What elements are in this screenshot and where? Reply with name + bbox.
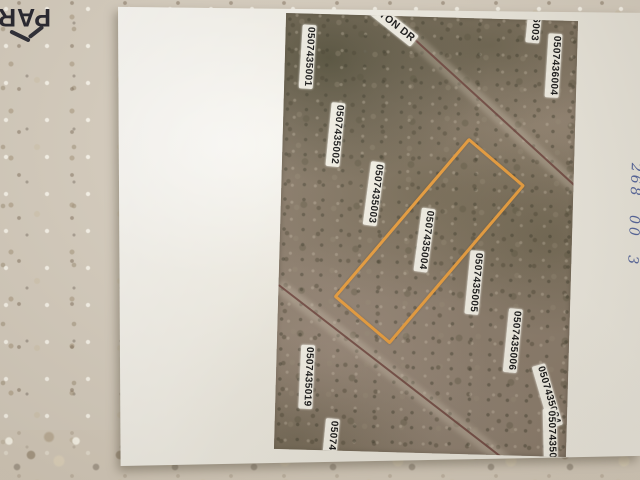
handwritten-note: 268 00 3 [624,163,640,268]
parcel-label-05074350: 05074350 [543,409,558,457]
photo-of-parcel-map: PAR 268 00 3 NGTON DR 050743500105074350… [0,0,640,480]
parcel-label-0507435019: 0507435019 [299,345,315,409]
aerial-map: NGTON DR 0507435001050743500205074350030… [274,13,578,457]
